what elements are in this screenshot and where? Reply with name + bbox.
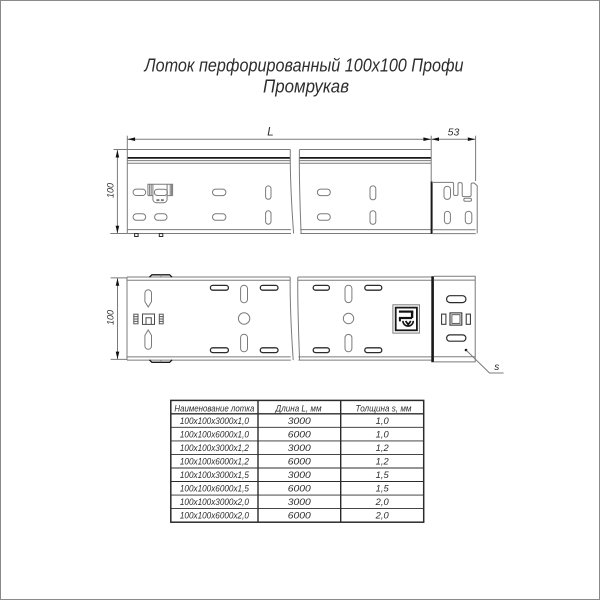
svg-text:100х100х3000х1,2: 100х100х3000х1,2 (180, 443, 249, 453)
svg-text:1,0: 1,0 (376, 416, 390, 426)
svg-text:6000: 6000 (288, 484, 312, 494)
svg-text:100: 100 (105, 183, 115, 198)
svg-text:Промрукав: Промрукав (263, 75, 349, 96)
svg-text:100: 100 (105, 310, 115, 325)
svg-text:100х100х6000х2,0: 100х100х6000х2,0 (180, 511, 250, 521)
svg-text:Длина L, мм: Длина L, мм (275, 403, 322, 414)
svg-text:Наименование лотка: Наименование лотка (174, 403, 254, 414)
svg-text:100х100х3000х1,5: 100х100х3000х1,5 (180, 470, 250, 480)
svg-text:Лоток перфорированный 100х100: Лоток перфорированный 100х100 Профи (144, 54, 464, 75)
svg-text:L: L (267, 127, 273, 139)
svg-text:3000: 3000 (288, 443, 312, 453)
svg-text:6000: 6000 (288, 511, 312, 521)
svg-text:100х100х6000х1,2: 100х100х6000х1,2 (180, 456, 249, 466)
svg-text:1,2: 1,2 (376, 443, 389, 453)
svg-text:3000: 3000 (288, 470, 312, 480)
svg-text:2,0: 2,0 (375, 497, 390, 507)
svg-text:s: s (494, 362, 499, 373)
svg-text:Толщина s, мм: Толщина s, мм (356, 403, 412, 414)
svg-text:53: 53 (448, 127, 460, 139)
svg-text:3000: 3000 (288, 497, 312, 507)
svg-text:1,5: 1,5 (376, 484, 390, 494)
svg-text:1,2: 1,2 (376, 456, 389, 466)
svg-text:6000: 6000 (288, 456, 312, 466)
svg-text:2,0: 2,0 (375, 511, 390, 521)
svg-text:1,0: 1,0 (376, 429, 390, 439)
svg-text:3000: 3000 (288, 416, 312, 426)
svg-text:6000: 6000 (288, 429, 312, 439)
svg-text:100х100х6000х1,0: 100х100х6000х1,0 (180, 429, 250, 439)
svg-text:100х100х6000х1,5: 100х100х6000х1,5 (180, 484, 250, 494)
svg-text:1,5: 1,5 (376, 470, 390, 480)
svg-text:100х100х3000х1,0: 100х100х3000х1,0 (180, 416, 250, 426)
svg-text:100х100х3000х2,0: 100х100х3000х2,0 (180, 497, 250, 507)
